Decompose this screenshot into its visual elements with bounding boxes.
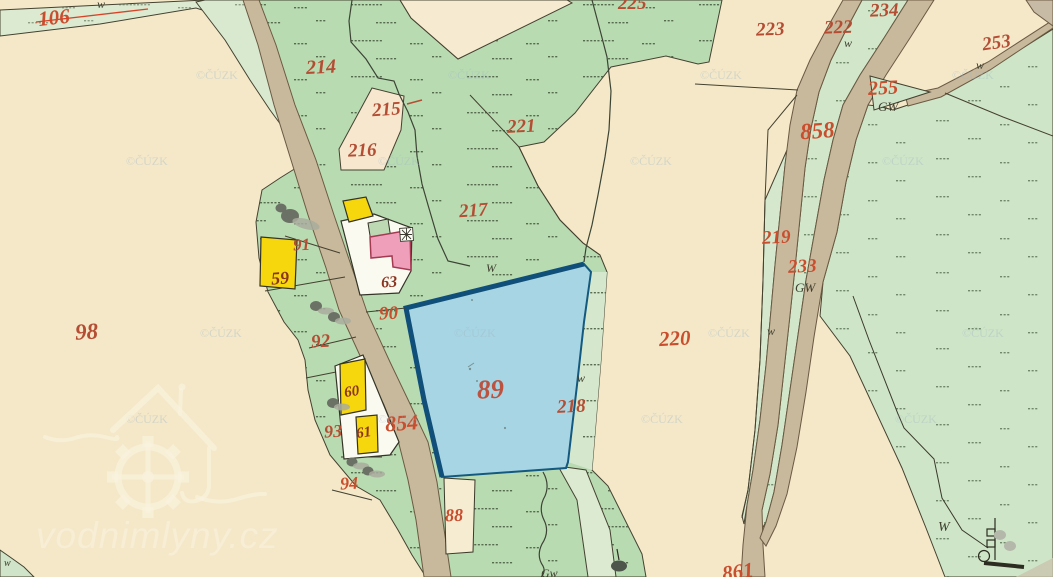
svg-text:©ČÚZK: ©ČÚZK bbox=[454, 326, 496, 340]
svg-text:GW: GW bbox=[795, 280, 816, 295]
svg-text:255: 255 bbox=[867, 76, 899, 100]
svg-text:223: 223 bbox=[755, 19, 785, 41]
svg-text:w: w bbox=[4, 558, 11, 569]
svg-text:91: 91 bbox=[293, 235, 311, 255]
svg-text:98: 98 bbox=[74, 319, 99, 345]
svg-text:225: 225 bbox=[617, 0, 647, 14]
svg-text:©ČÚZK: ©ČÚZK bbox=[952, 68, 994, 82]
svg-text:GW: GW bbox=[878, 99, 899, 114]
svg-text:60: 60 bbox=[343, 383, 361, 401]
svg-text:220: 220 bbox=[657, 325, 691, 351]
svg-text:©ČÚZK: ©ČÚZK bbox=[641, 412, 683, 426]
svg-text:w: w bbox=[767, 324, 775, 338]
svg-text:216: 216 bbox=[347, 140, 378, 162]
svg-text:234: 234 bbox=[869, 0, 899, 22]
svg-text:217: 217 bbox=[457, 199, 489, 222]
svg-text:219: 219 bbox=[761, 226, 792, 249]
svg-text:©ČÚZK: ©ČÚZK bbox=[448, 68, 490, 82]
svg-text:©ČÚZK: ©ČÚZK bbox=[708, 326, 750, 340]
svg-text:w: w bbox=[97, 0, 105, 11]
svg-text:92: 92 bbox=[311, 331, 332, 353]
svg-text:©ČÚZK: ©ČÚZK bbox=[196, 68, 238, 82]
svg-text:90: 90 bbox=[379, 303, 400, 325]
svg-text:vodnimlyny.cz: vodnimlyny.cz bbox=[36, 515, 279, 556]
svg-text:©ČÚZK: ©ČÚZK bbox=[378, 412, 420, 426]
svg-text:861: 861 bbox=[721, 557, 756, 577]
svg-text:©ČÚZK: ©ČÚZK bbox=[630, 154, 672, 168]
svg-text:Gw: Gw bbox=[541, 566, 558, 577]
svg-text:©ČÚZK: ©ČÚZK bbox=[126, 154, 168, 168]
svg-text:233: 233 bbox=[787, 255, 818, 278]
svg-text:59: 59 bbox=[270, 267, 289, 288]
svg-text:©ČÚZK: ©ČÚZK bbox=[378, 154, 420, 168]
svg-text:89: 89 bbox=[476, 374, 505, 405]
svg-text:858: 858 bbox=[799, 117, 836, 144]
svg-text:214: 214 bbox=[305, 55, 337, 79]
svg-text:88: 88 bbox=[445, 505, 464, 526]
svg-text:©ČÚZK: ©ČÚZK bbox=[200, 326, 242, 340]
svg-text:W: W bbox=[938, 520, 951, 535]
svg-text:94: 94 bbox=[340, 473, 359, 494]
svg-text:106: 106 bbox=[37, 4, 71, 31]
svg-text:93: 93 bbox=[324, 421, 343, 442]
svg-text:©ČÚZK: ©ČÚZK bbox=[962, 326, 1004, 340]
svg-text:61: 61 bbox=[355, 424, 372, 442]
svg-text:©ČÚZK: ©ČÚZK bbox=[895, 412, 937, 426]
svg-text:w: w bbox=[844, 36, 852, 50]
svg-text:221: 221 bbox=[506, 115, 537, 138]
svg-text:W: W bbox=[486, 261, 497, 275]
svg-text:63: 63 bbox=[381, 274, 398, 292]
svg-text:©ČÚZK: ©ČÚZK bbox=[882, 154, 924, 168]
svg-text:©ČÚZK: ©ČÚZK bbox=[700, 68, 742, 82]
svg-text:253: 253 bbox=[980, 31, 1012, 56]
svg-text:215: 215 bbox=[370, 98, 401, 121]
svg-text:w: w bbox=[577, 371, 585, 385]
svg-text:218: 218 bbox=[556, 395, 587, 418]
